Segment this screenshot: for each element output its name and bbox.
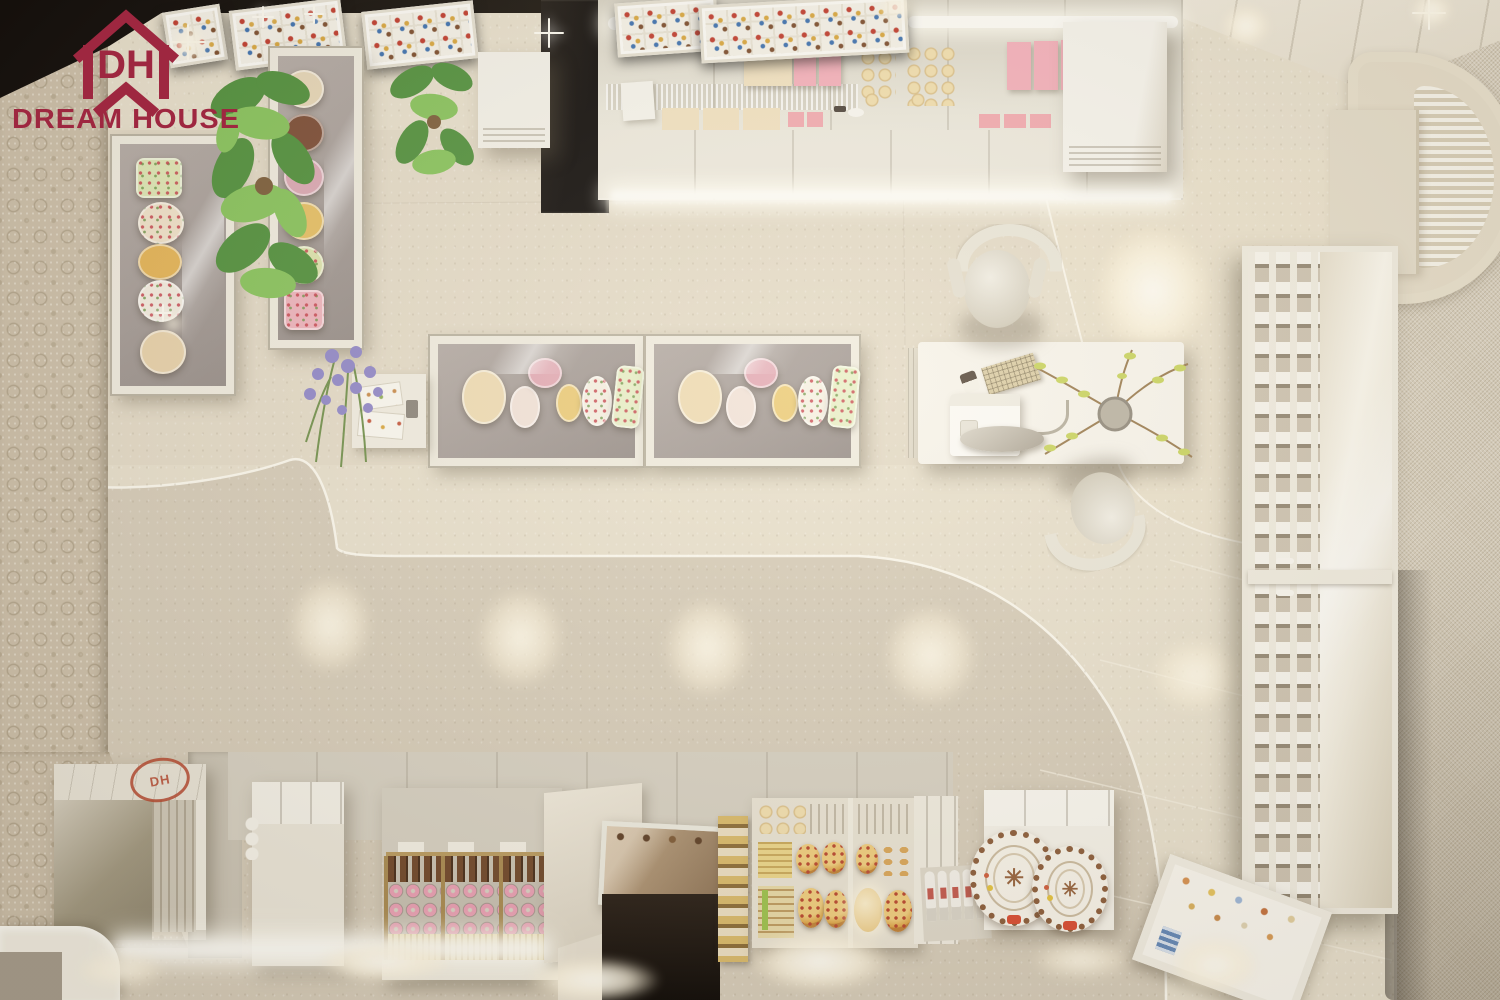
logo-cabinet: DH: [54, 764, 206, 940]
cake: [772, 384, 798, 422]
cabinet-vent: [483, 126, 545, 142]
candy-dot: [984, 873, 989, 878]
red-bow: [1007, 915, 1021, 924]
remote-item: [834, 106, 846, 112]
milk-bottle: [924, 871, 936, 921]
decorated-cookie-cake: ✳: [1032, 846, 1108, 932]
cake: [136, 158, 182, 198]
cake: [582, 376, 612, 426]
monstera-plant: [382, 42, 487, 192]
cabinet-top-face: [252, 782, 344, 824]
cake: [678, 370, 722, 424]
corner-step-base: [0, 952, 62, 1000]
logo-wordmark: DREAM HOUSE: [12, 103, 240, 132]
bun-single: [910, 92, 928, 107]
eclair-shelf: [445, 856, 498, 882]
rack-shelf-slats: [810, 804, 912, 834]
white-cabinet: [252, 782, 344, 966]
cabinet-handle: [1276, 590, 1294, 596]
white-dish: [848, 108, 864, 117]
plate-cabinet: [1242, 246, 1398, 914]
pink-cake-box: [1007, 42, 1031, 90]
pizza: [856, 844, 878, 874]
island-display-case: [430, 336, 643, 466]
stamp-monogram: DH: [148, 771, 171, 789]
arch-louver-panel: [1414, 86, 1494, 268]
pizza: [884, 890, 912, 932]
cake: [138, 202, 184, 244]
pink-pack: [1004, 114, 1025, 128]
pink-pack: [979, 114, 1000, 128]
pizza: [796, 844, 820, 874]
cake: [140, 330, 186, 374]
eclair-shelf: [388, 856, 441, 882]
cookie-ring: [993, 853, 1035, 903]
pink-pack: [788, 112, 804, 127]
cabinet-handle: [1276, 558, 1294, 564]
red-bow: [1063, 921, 1077, 930]
milk-bottle: [937, 870, 949, 920]
donut-shelf: [445, 882, 498, 934]
milk-bottle: [949, 870, 961, 920]
dream-house-logo-graphic: DH DREAM HOUSE: [8, 6, 244, 132]
island-display-case: [646, 336, 859, 466]
cream-box-row: [662, 108, 780, 130]
menu-food-photos: [705, 1, 903, 57]
pizza: [798, 888, 824, 928]
blue-packet: [1155, 926, 1182, 955]
cabinet-slat-panel: [152, 800, 196, 932]
croissant-row: [880, 842, 914, 876]
bun-single: [864, 92, 881, 107]
bread-pizza-rack: [752, 798, 918, 948]
cake: [726, 386, 756, 428]
chocolate-case-body: [602, 894, 720, 1000]
cake: [462, 370, 506, 424]
cake: [611, 365, 645, 430]
cake: [138, 280, 184, 322]
card-slot: [406, 400, 418, 418]
cake: [827, 365, 861, 430]
fridge-vent: [1069, 144, 1161, 166]
under-counter-glow: [610, 190, 1173, 202]
small-buns-row: [758, 804, 806, 834]
donut-shelf: [388, 882, 441, 934]
desk-twig-plant: [1020, 342, 1200, 474]
gold-packs-shelf: [718, 816, 748, 962]
chair-seat: [964, 250, 1030, 328]
cake: [528, 358, 562, 388]
cabinet-front-mirror: [54, 800, 152, 940]
cake: [556, 384, 582, 422]
lavender-plant: [286, 322, 398, 474]
rack-divider: [848, 798, 853, 948]
pizza: [822, 842, 846, 874]
cake: [798, 376, 828, 426]
printer-top-strip: [950, 394, 1020, 406]
logo-monogram: DH: [97, 43, 155, 87]
white-fridge-cabinet: [1063, 22, 1167, 172]
menu-lightbox: [699, 0, 910, 63]
wall-flower-decor: [244, 816, 260, 860]
candy-dot: [987, 885, 993, 891]
plant-stem-center: [255, 177, 273, 195]
pink-pack: [807, 112, 823, 127]
cake: [510, 386, 540, 428]
cookie-ring: [1055, 869, 1085, 909]
white-side-cabinet: [478, 52, 550, 148]
bakery-interior-render: DH: [0, 0, 1500, 1000]
candy-dot: [1047, 895, 1053, 901]
cream-box: [743, 108, 780, 130]
matcha-item: [762, 890, 768, 930]
cake: [138, 244, 182, 280]
pink-pack: [1030, 114, 1051, 128]
sandwich-stack: [758, 842, 792, 878]
case-base: [382, 960, 562, 980]
under-cabinet-glow: [116, 940, 546, 958]
cream-box: [662, 108, 699, 130]
plant-stem-center: [427, 115, 441, 129]
pink-cake-box: [1034, 41, 1058, 90]
lavender-blooms: [304, 346, 383, 415]
card-reader: [959, 370, 981, 394]
pizza: [824, 890, 848, 928]
plant-vase: [1099, 398, 1131, 430]
brand-logo: DH DREAM HOUSE: [8, 6, 244, 132]
cream-box: [703, 108, 740, 130]
bright-bread: [854, 888, 882, 932]
box-top-face: [984, 790, 1114, 826]
cabinet-divider-bar: [1248, 570, 1392, 584]
cabinet-end-panel: [196, 800, 206, 930]
white-wall-lamp-box: [621, 81, 656, 121]
cake: [744, 358, 778, 388]
desk-chair: [950, 224, 1044, 348]
pink-pack-row: [979, 114, 1051, 128]
